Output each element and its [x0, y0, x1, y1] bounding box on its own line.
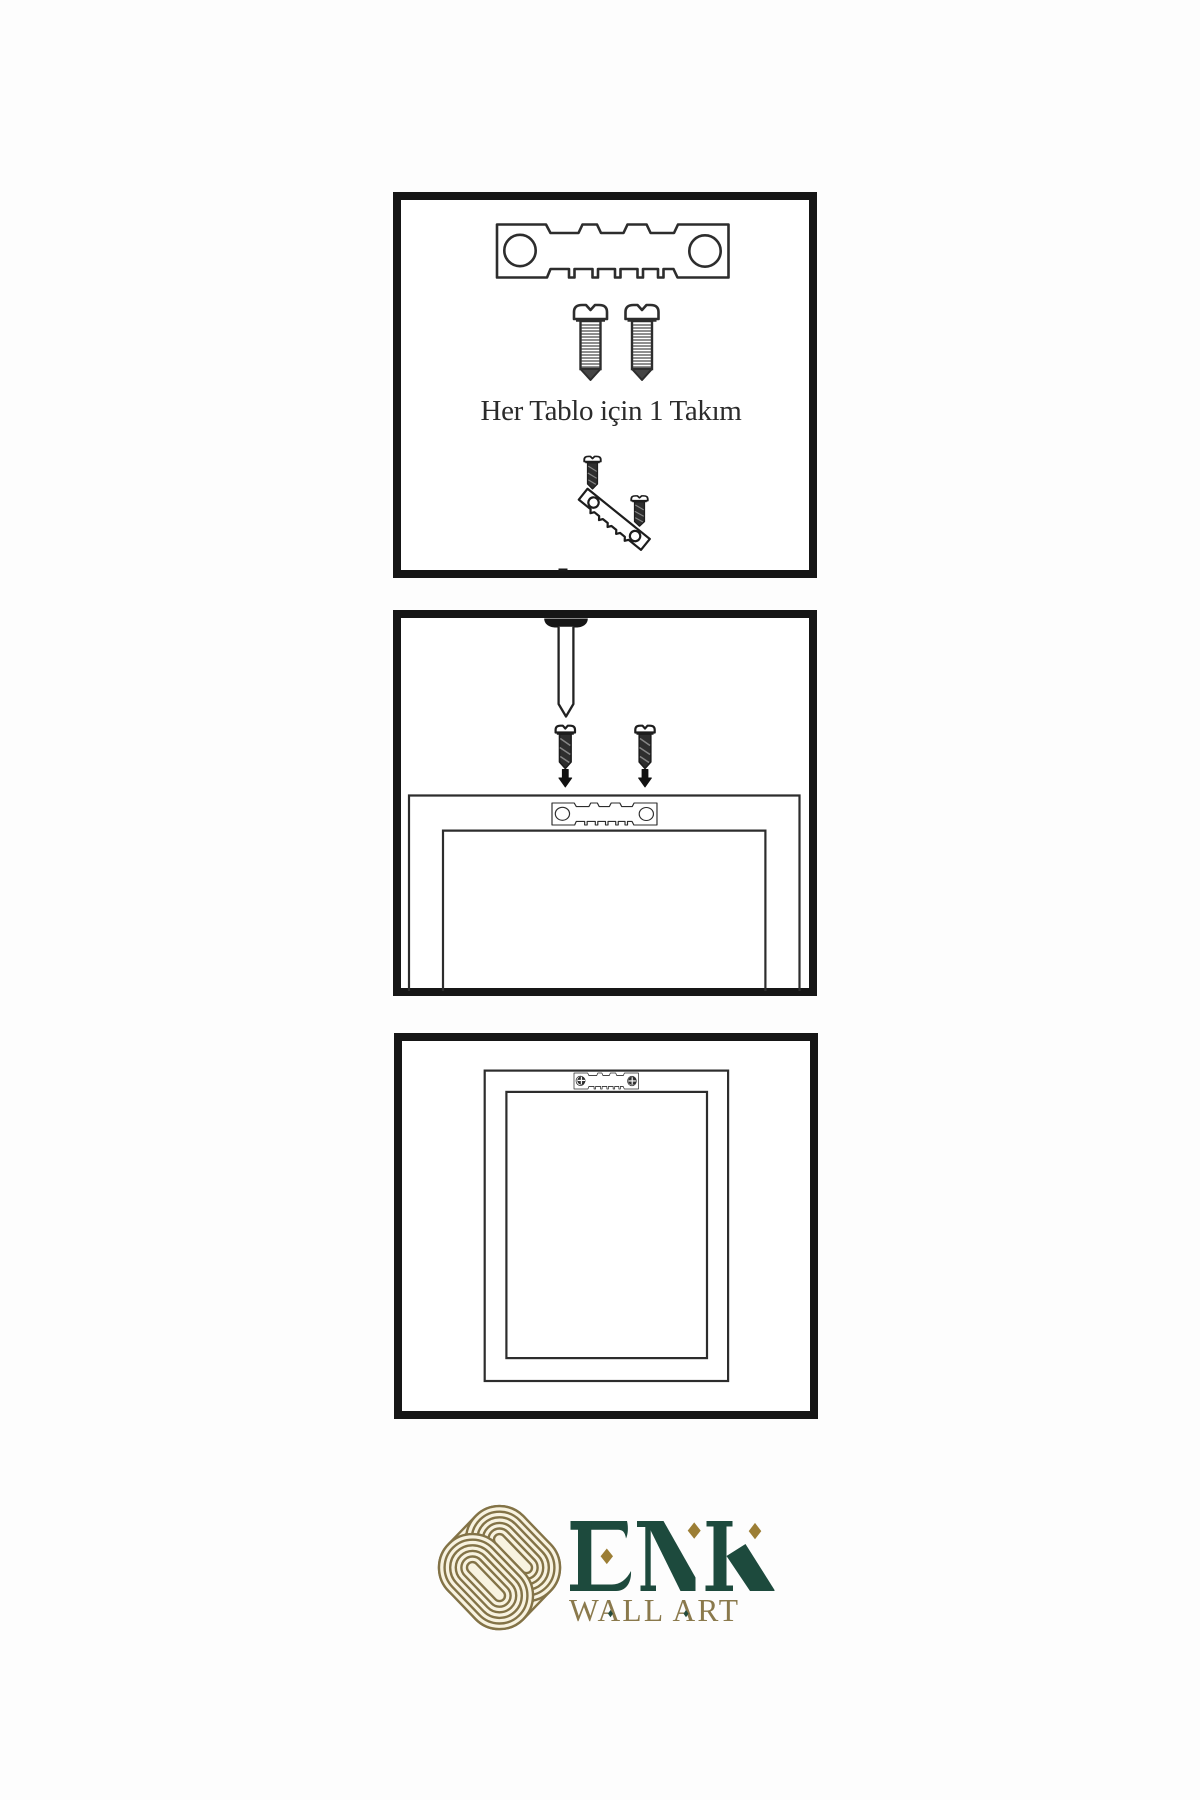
svg-text:Her Tablo için 1 Takım: Her Tablo için 1 Takım [480, 395, 742, 427]
svg-text:WALL ART: WALL ART [569, 1593, 740, 1628]
